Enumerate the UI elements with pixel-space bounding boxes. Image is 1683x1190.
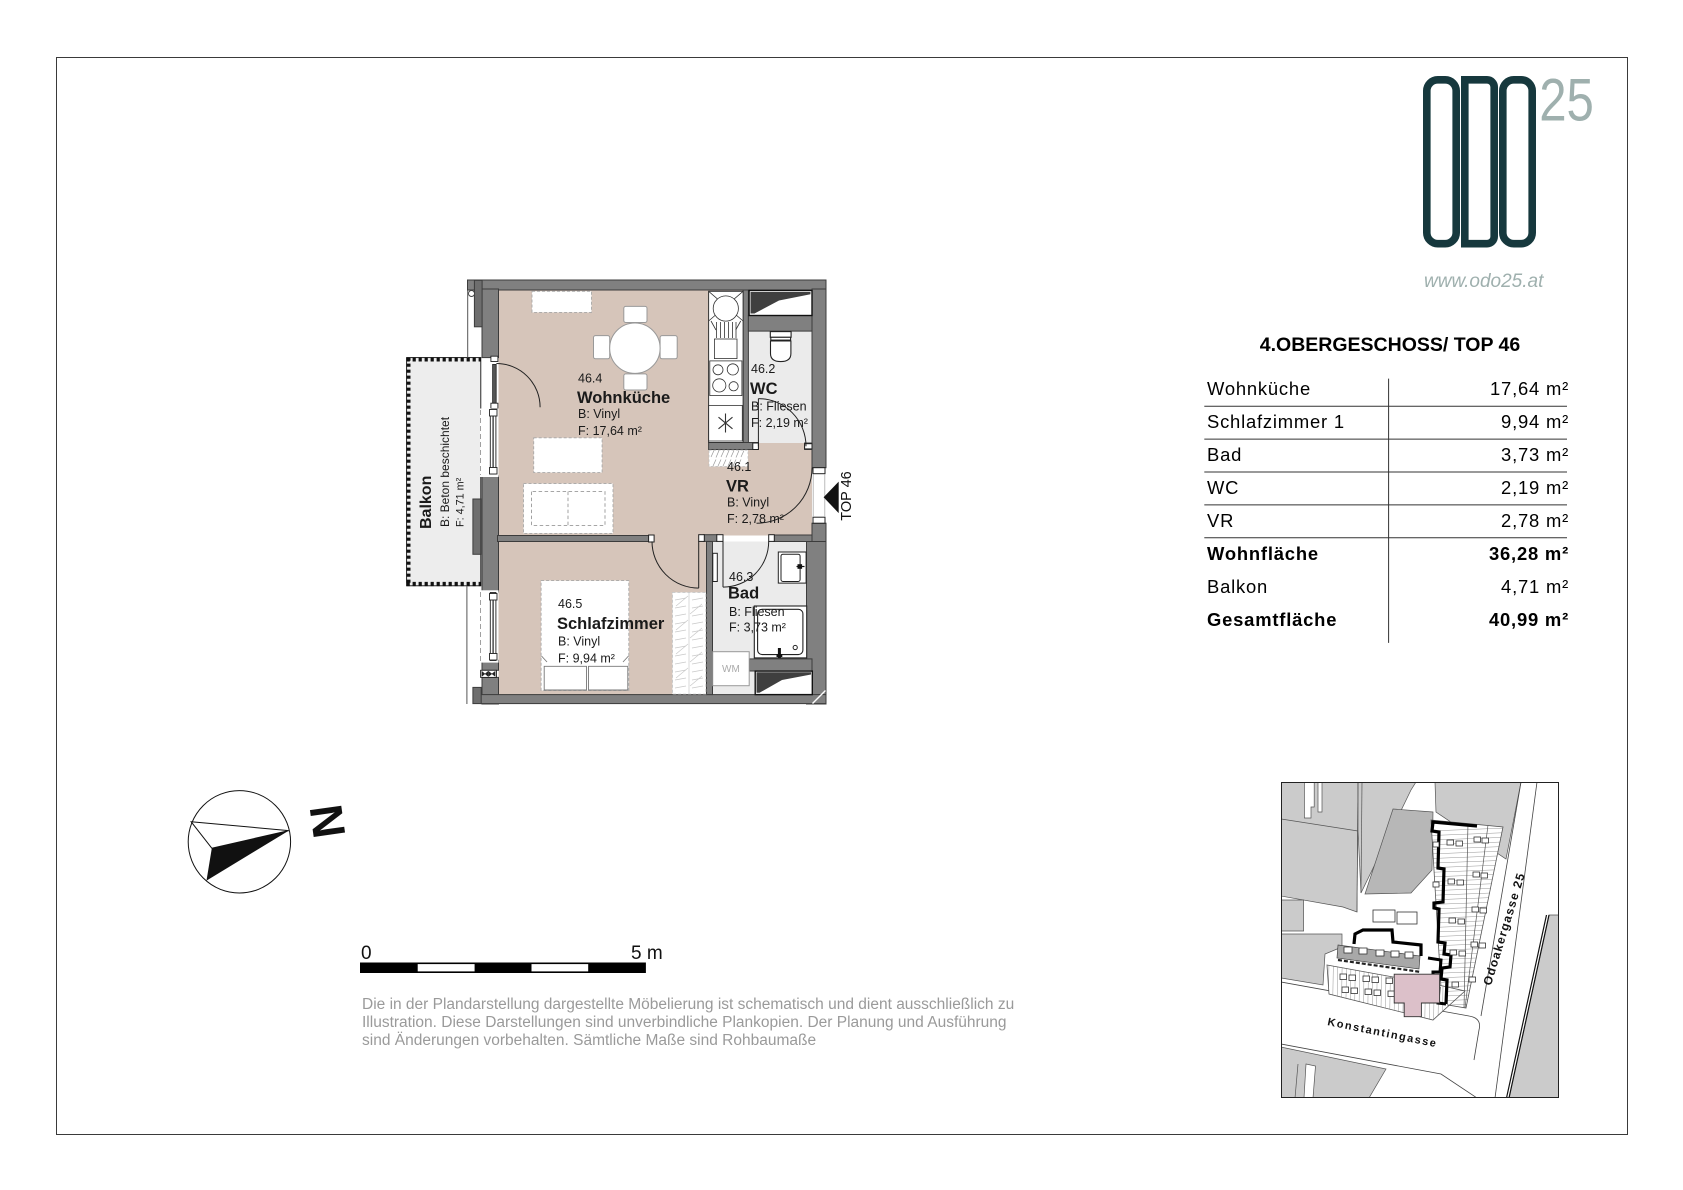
svg-text:F: 2,19 m²: F: 2,19 m² (751, 416, 808, 430)
svg-text:B: Vinyl: B: Vinyl (727, 496, 769, 510)
svg-text:5 m: 5 m (631, 943, 663, 964)
svg-text:46.1: 46.1 (727, 460, 751, 474)
svg-text:F: 2,78 m²: F: 2,78 m² (727, 512, 784, 526)
svg-text:Wohnküche: Wohnküche (577, 389, 670, 407)
svg-text:WM: WM (722, 664, 740, 675)
svg-text:B: Vinyl: B: Vinyl (558, 635, 600, 649)
svg-text:46.2: 46.2 (751, 362, 775, 376)
svg-text:46.3: 46.3 (729, 570, 753, 584)
svg-text:46.4: 46.4 (578, 372, 602, 386)
svg-text:25: 25 (1539, 70, 1594, 134)
svg-text:B: Vinyl: B: Vinyl (578, 407, 620, 421)
svg-text:N: N (300, 801, 356, 841)
svg-text:B: Fliesen: B: Fliesen (729, 605, 785, 619)
svg-text:Bad: Bad (728, 585, 759, 603)
svg-text:0: 0 (361, 943, 372, 964)
svg-text:F: 9,94 m²: F: 9,94 m² (558, 652, 615, 666)
svg-text:VR: VR (726, 478, 749, 496)
svg-text:46.5: 46.5 (558, 597, 582, 611)
svg-text:B: Fliesen: B: Fliesen (751, 400, 807, 414)
svg-text:Schlafzimmer: Schlafzimmer (557, 615, 665, 633)
svg-text:Balkon: Balkon (418, 476, 435, 529)
svg-text:B: Beton beschichtet: B: Beton beschichtet (438, 416, 452, 527)
svg-text:TOP 46: TOP 46 (839, 471, 855, 520)
svg-text:WC: WC (750, 380, 778, 398)
svg-text:F: 17,64 m²: F: 17,64 m² (578, 424, 642, 438)
svg-text:F: 4,71 m²: F: 4,71 m² (455, 477, 467, 527)
svg-text:F: 3,73 m²: F: 3,73 m² (729, 621, 786, 635)
